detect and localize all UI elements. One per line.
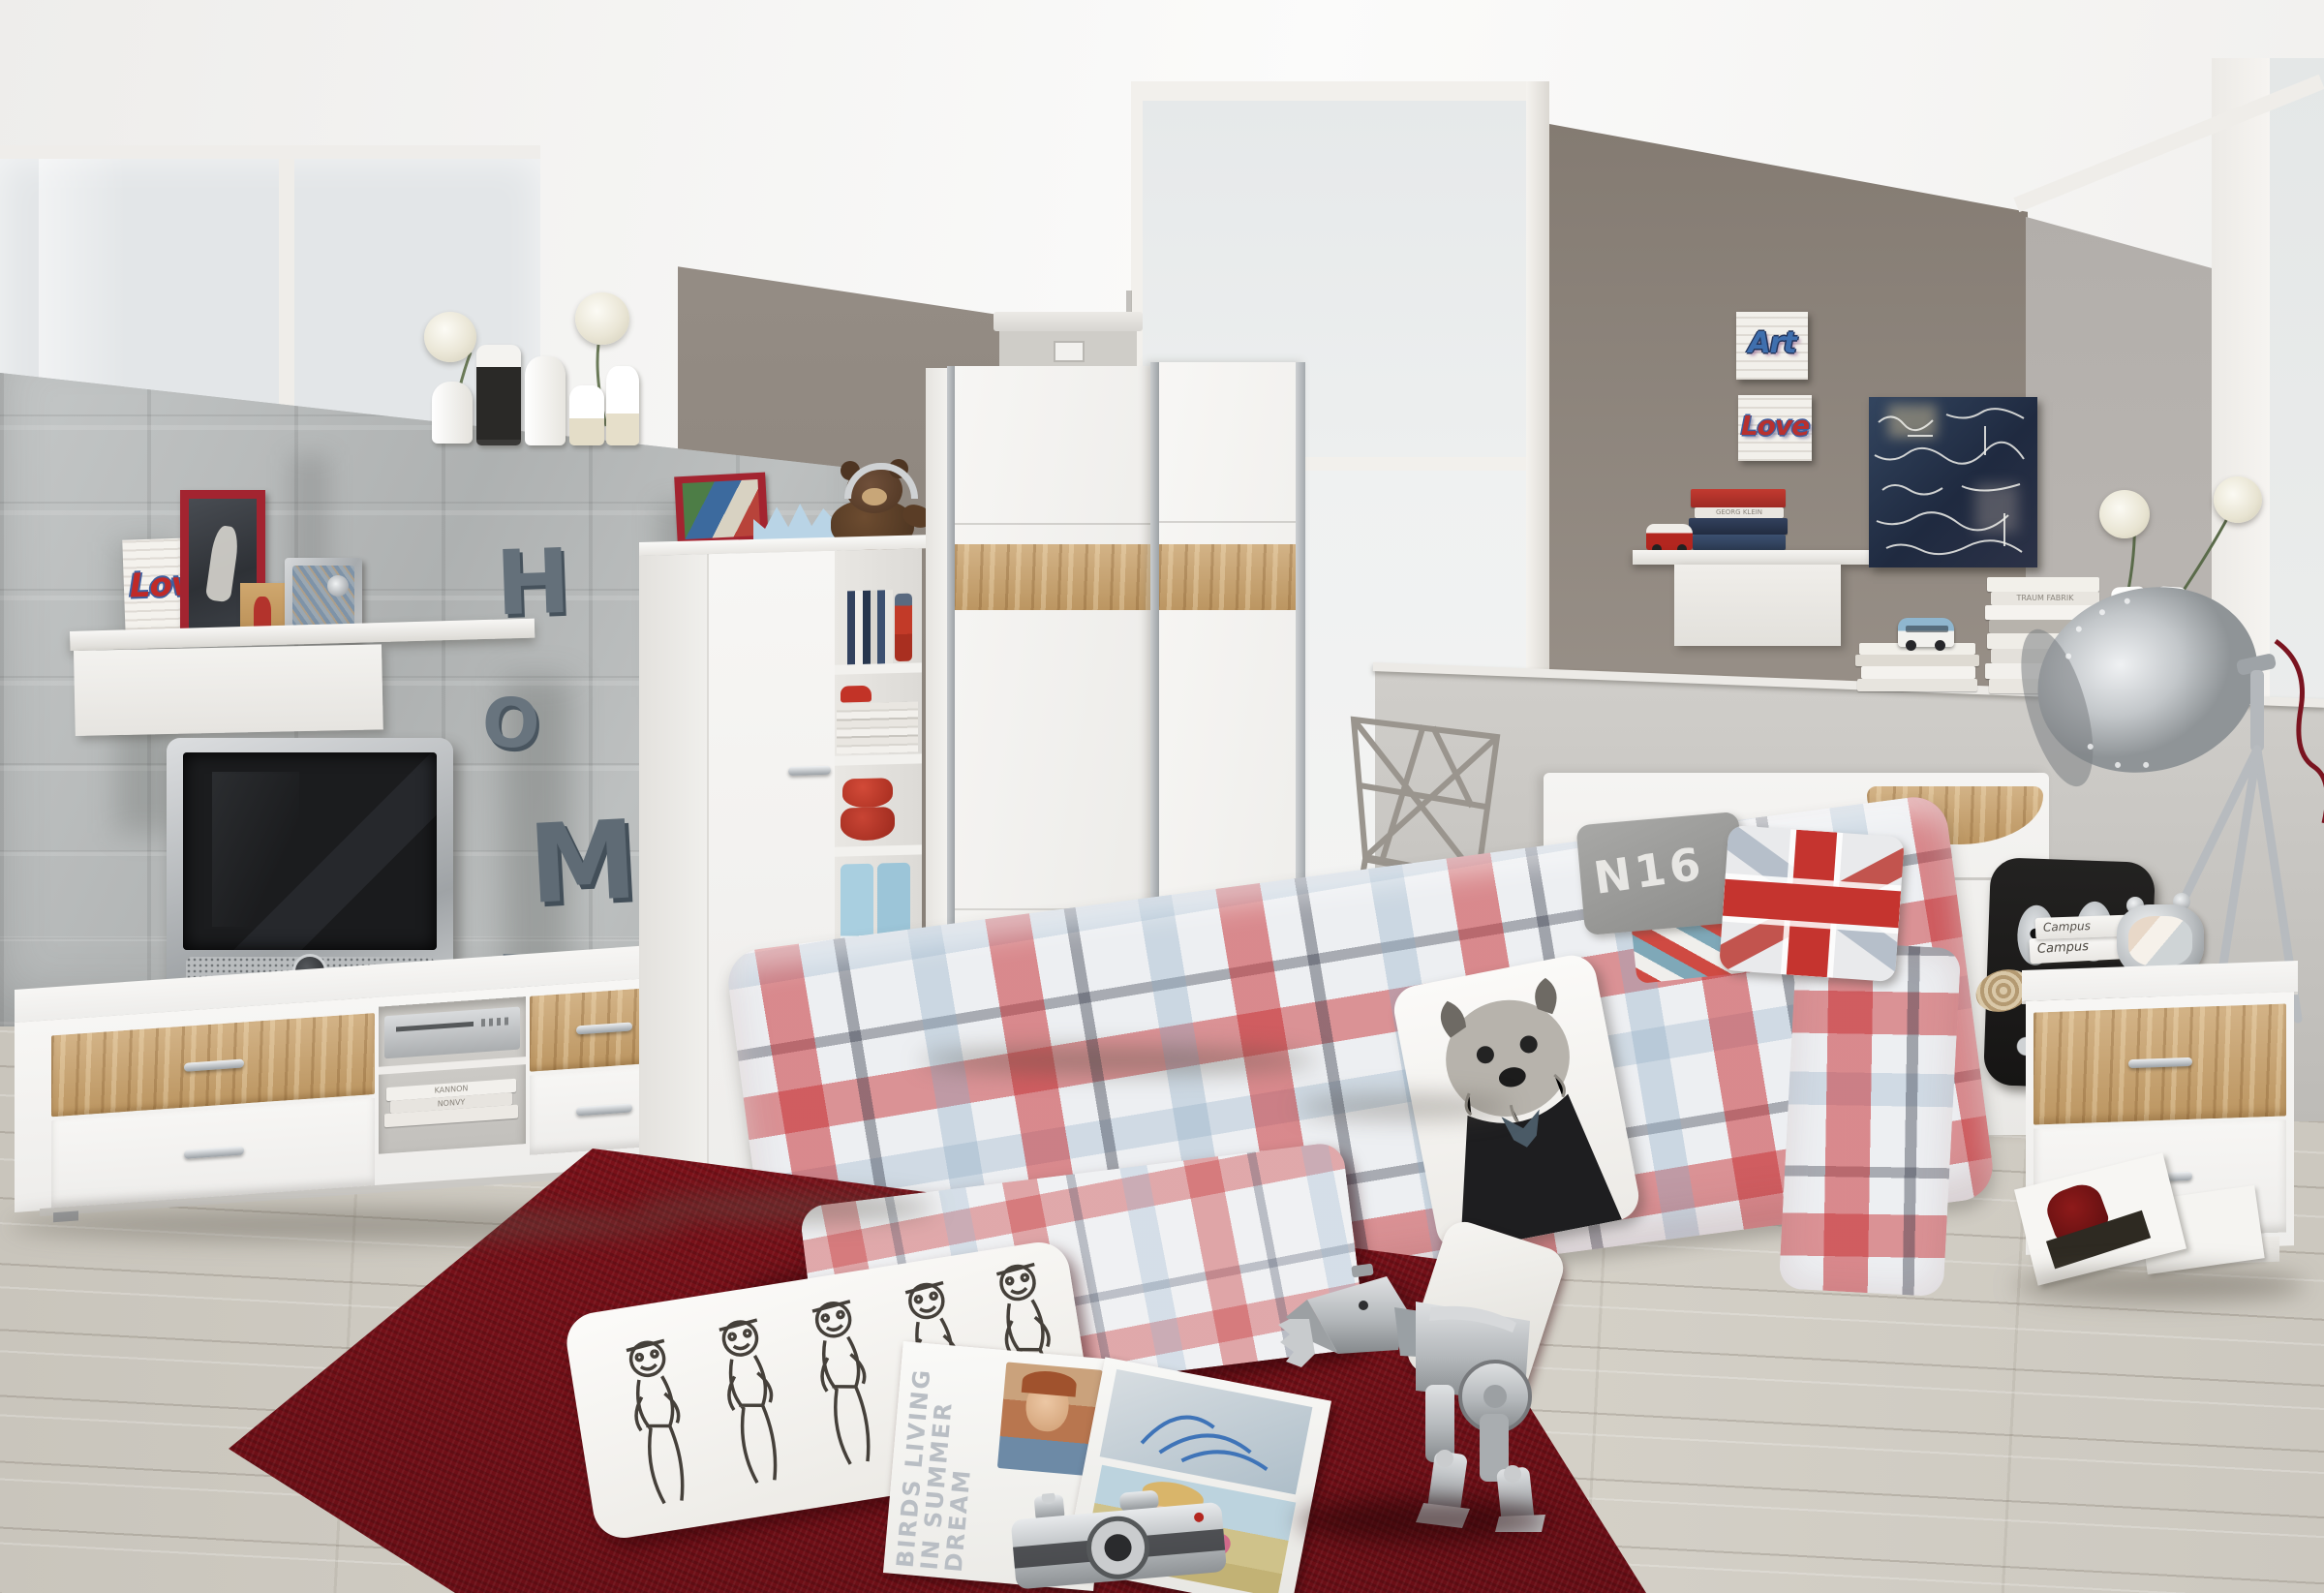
left-shelf-fascia <box>74 644 383 736</box>
bedroom-photo: Art Love GEORG KLEIN <box>0 0 2324 1593</box>
tv-screen <box>183 752 437 950</box>
painting-scribbles <box>1869 397 2037 567</box>
lowboard-open-shelf: KANNON NONVY <box>379 996 526 1154</box>
vase <box>569 385 604 445</box>
speaker-grille <box>292 566 354 626</box>
silver-toy-camera <box>1005 1478 1237 1593</box>
cabinet-side <box>639 554 707 1199</box>
bus-windows <box>1906 626 1948 632</box>
book <box>1693 535 1786 550</box>
drawer-handle <box>184 1146 244 1158</box>
blue-abstract-painting <box>1869 397 2037 567</box>
flower-bloom <box>2214 476 2262 523</box>
red-bus-toy <box>1646 524 1693 550</box>
campus-title: Campus <box>2037 939 2090 957</box>
drawer-handle <box>2128 1057 2192 1068</box>
screen-reflection <box>212 772 299 927</box>
dvd-buttons <box>481 1017 510 1026</box>
shelf-divider <box>379 1057 526 1075</box>
nightstand-drawer-oak <box>2033 1003 2286 1124</box>
kid-hair <box>1022 1369 1078 1397</box>
photo-figure <box>205 525 241 603</box>
cabinet-shadow <box>634 1193 934 1222</box>
flat-tv <box>167 738 453 997</box>
shelf-fascia <box>1674 565 1841 646</box>
nightstand-shadow <box>2014 1269 2305 1302</box>
vase <box>432 382 473 444</box>
book <box>1861 666 1975 679</box>
canvas-art-word: Art <box>1748 326 1795 360</box>
clock-face <box>2128 916 2192 966</box>
bus-wheel <box>1935 640 1945 651</box>
drawer-handle <box>576 1022 632 1034</box>
door-line <box>1159 521 1305 523</box>
ledge-book-stack-left <box>1855 643 1981 693</box>
bus-wheel <box>1906 640 1916 651</box>
book <box>1691 489 1786 507</box>
toy-robot-figure <box>895 594 912 661</box>
flower-bloom <box>575 292 629 345</box>
drawer-handle <box>576 1103 632 1116</box>
red-toy-car <box>841 686 871 703</box>
box-lid <box>994 312 1143 331</box>
home-letter-o: O <box>480 682 542 764</box>
shelf-board <box>1633 550 1873 565</box>
vase-black-sleeve <box>476 345 521 445</box>
dark-wall-shelf-books: GEORG KLEIN <box>1633 479 1884 654</box>
book <box>1689 518 1788 535</box>
door-line <box>955 523 1150 525</box>
vase <box>606 366 639 445</box>
dvd-slot <box>396 1022 474 1032</box>
drawer-handle <box>184 1058 244 1071</box>
pillow-tag-text: N16 <box>1590 837 1707 904</box>
vw-bus-toy <box>1898 618 1954 647</box>
magazine-headline: BIRDS LIVING IN SUMMER DREAM <box>894 1350 997 1575</box>
shelf-board <box>835 753 922 765</box>
campus-title: Campus <box>2043 919 2091 934</box>
vase <box>525 356 566 445</box>
graffiti-canvas-love: Love <box>1738 395 1812 461</box>
home-letter-m: M <box>526 797 640 929</box>
wardrobe-oak-band <box>1159 544 1305 610</box>
lowboard-shadow <box>10 1209 688 1241</box>
speaker-knob <box>327 575 349 597</box>
shelf-books <box>839 590 893 664</box>
wardrobe-shadow <box>920 1048 1317 1073</box>
flower-bloom <box>424 312 476 362</box>
shelf-board <box>835 662 922 674</box>
wardrobe-oak-band <box>955 544 1150 610</box>
flower-bloom <box>2099 490 2150 538</box>
duvet-drape-right <box>1779 940 1962 1297</box>
graffiti-canvas-art: Art <box>1736 312 1808 380</box>
magazine-stack <box>837 701 918 753</box>
dvd-player <box>384 1006 520 1058</box>
book <box>1857 679 1977 691</box>
silver-robot-dog <box>1270 1249 1571 1540</box>
book: GEORG KLEIN <box>1695 507 1784 518</box>
robot-shadow <box>1298 1499 1549 1542</box>
book <box>1855 655 1979 666</box>
art-inner <box>683 479 761 539</box>
canvas-love-word: Love <box>1741 410 1809 442</box>
chair-shadow <box>1298 1094 1511 1119</box>
union-jack-pillow <box>1719 825 1905 982</box>
